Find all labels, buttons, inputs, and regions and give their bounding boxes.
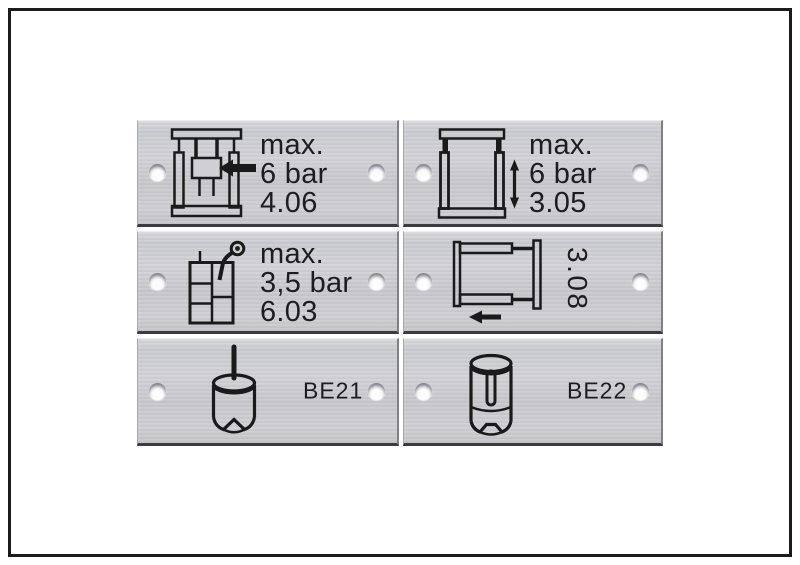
label-plate-vertical-frame: max. 6 bar 3.05 [403, 120, 663, 227]
frame-horizontal-arrow-icon [452, 239, 542, 324]
mounting-hole [149, 383, 166, 400]
plate-text-line: max. [260, 131, 328, 160]
mounting-hole [632, 273, 649, 290]
plate-text-line: 3.05 [529, 189, 597, 218]
mounting-hole [415, 164, 432, 181]
catalog-photo: max. 6 bar 4.06 max. 6 bar 3.05 [0, 0, 800, 565]
plate-code-text: BE21 [303, 378, 363, 405]
mounting-hole [149, 164, 166, 181]
mounting-hole [415, 273, 432, 290]
press-clamp-icon [169, 127, 259, 222]
punch-tool-icon [210, 344, 258, 439]
label-plate-be21: BE21 [137, 338, 399, 446]
label-plate-press-clamp: max. 6 bar 4.06 [137, 120, 399, 227]
slotted-punch-tool-icon [468, 350, 516, 442]
mounting-hole [415, 383, 432, 400]
mounting-hole [368, 273, 385, 290]
plate-text-line: max. [529, 131, 597, 160]
label-plate-tank-suction: max. 3,5 bar 6.03 [137, 231, 399, 334]
plate-text-line: 4.06 [260, 189, 328, 218]
plate-code-text: BE22 [567, 378, 627, 405]
mounting-hole [368, 383, 385, 400]
plate-text: max. 6 bar 3.05 [529, 131, 597, 218]
plate-text-line: max. [260, 240, 352, 269]
plate-text-line: 6 bar [260, 160, 328, 189]
mounting-hole [632, 383, 649, 400]
photo-border [8, 8, 792, 557]
tank-suction-icon [188, 240, 250, 325]
plate-text: max. 3,5 bar 6.03 [260, 240, 352, 327]
plate-text-vertical: 3.08 [561, 247, 593, 312]
mounting-hole [149, 273, 166, 290]
label-plate-horizontal-frame: 3.08 [403, 231, 663, 334]
label-plate-be22: BE22 [403, 338, 663, 446]
mounting-hole [632, 164, 649, 181]
plate-text-line: 6 bar [529, 160, 597, 189]
frame-vertical-arrow-icon [437, 127, 522, 220]
plate-text-line: 3,5 bar [260, 269, 352, 298]
plate-text-line: 6.03 [260, 298, 352, 327]
plate-text: max. 6 bar 4.06 [260, 131, 328, 218]
mounting-hole [368, 164, 385, 181]
